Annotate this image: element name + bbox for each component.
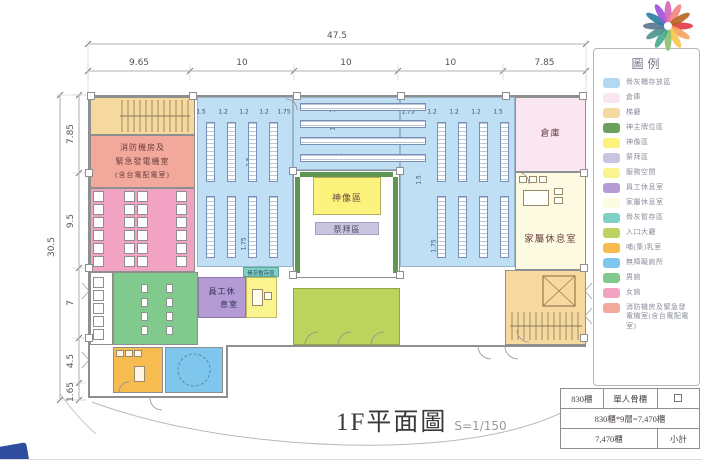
legend-swatch [603,93,620,103]
structural-column [293,92,301,100]
toilet-stall [137,256,148,267]
legend-swatch [603,273,620,283]
statue-area-label: 神像區 [314,191,380,204]
cabinet-strip [500,122,509,182]
urinal-fixture [166,326,173,335]
legend-item: 神像區 [603,138,692,148]
legend-item: 男廁 [603,273,692,283]
legend-item-label: 祭拜區 [626,153,649,162]
tablet-zone-bar-right [393,177,398,273]
legend-item-label: 入口大廳 [626,228,656,237]
structural-column [189,92,197,100]
legend-item: 梯廳 [603,108,692,118]
urinal-fixture [141,312,148,321]
cabinet-strip [479,122,488,182]
room-temp-ash-storage: 骨灰暫存區 [243,267,279,277]
legend-swatch [603,183,620,193]
wall-bottom-center [226,345,586,347]
dim-left-segment: 7.85 [66,124,76,144]
toilet-stall [93,256,104,267]
cabinet-strip [458,122,467,182]
toilet-stall [137,217,148,228]
dim-top-segment: 10 [445,58,456,68]
structural-column [579,92,587,100]
cabinet-strip [227,196,236,258]
cabinet-dim: 1.5 [196,109,206,116]
count-type: 單人骨櫃 [603,389,657,409]
legend-swatch [603,213,620,223]
legend-title: 圖例 [603,55,692,72]
room-stair-hall-topleft [90,97,195,135]
legend-item-label: 員工休息室 [626,183,664,192]
toilet-stall [176,243,187,254]
family-lounge-table [523,190,549,206]
legend-swatch [603,108,620,118]
single-cabinet-symbol-cell [657,389,699,409]
legend-item-label: 服務空間 [626,168,656,177]
legend-swatch [603,288,620,298]
legend-item-label: 神主牌位區 [626,123,664,132]
legend-item: 倉庫 [603,93,692,103]
toilet-stall [93,329,104,340]
dim-left-segment: 9.5 [66,213,76,227]
toilet-stall [124,230,135,241]
cabinet-dim: 1.2 [449,109,459,116]
cabinet-strip [437,196,446,258]
dim-left-segment: 4.5 [66,353,76,367]
toilet-stall [137,230,148,241]
toilet-stall [137,243,148,254]
dim-top-segment: 9.65 [129,58,149,68]
count-subtotal-label: 小計 [657,429,699,449]
nursing-counter [134,366,145,382]
toilet-stall [124,191,135,202]
legend-item: 女廁 [603,288,692,298]
legend-swatch [603,138,620,148]
cabinet-strip [300,103,426,111]
legend-item: 入口大廳 [603,228,692,238]
warehouse-label: 倉庫 [516,126,585,139]
structural-column [85,264,93,272]
toilet-stall [93,217,104,228]
legend-item-label: 骨灰櫃存放區 [626,78,671,87]
cabinet-dim: 1.5 [493,109,503,116]
cabinet-strip [269,122,278,182]
legend-item-label: 神像區 [626,138,649,147]
legend-item-label: 哺(集)乳室 [626,243,662,252]
room-accessible-toilet [165,347,223,393]
tablet-zone-bar-left [295,177,300,273]
urinal-fixture [141,298,148,307]
legend-item-label: 倉庫 [626,93,641,102]
legend-item: 神主牌位區 [603,123,692,133]
urinal-fixture [141,284,148,293]
legend-swatch [603,228,620,238]
room-staff-lounge: 員工休 息室 [198,277,246,318]
drawing-sheet: 消防機房及 緊急發電機室 (含台電配電室) 神像區 祭拜區 [0,0,702,460]
toilet-stall [124,204,135,215]
room-mens-toilet [113,272,198,345]
toilet-stall [176,217,187,228]
legend-swatch [603,153,620,163]
toilet-stall [93,204,104,215]
legend-item: 服務空間 [603,168,692,178]
cabinet-strip [248,122,257,182]
toilet-stall [137,204,148,215]
legend-item: 家屬休息室 [603,198,692,208]
title-text: 1F平面圖 [336,409,447,436]
cabinet-strip [437,122,446,182]
room-warehouse: 倉庫 [515,97,586,172]
legend-item: 骨灰暫存區 [603,213,692,223]
toilet-stall [124,217,135,228]
legend-swatch [603,258,620,268]
structural-column [580,334,588,342]
dim-top-segment: 10 [236,58,247,68]
worship-area: 祭拜區 [315,222,379,235]
structural-column [397,92,405,100]
legend-item: 消防機房及緊急發電機室(含台電配電室) [603,303,692,331]
legend-item: 祭拜區 [603,153,692,163]
room-stair-hall-bottomright [505,270,586,345]
cabinet-strip [479,196,488,258]
legend-item-label: 男廁 [626,273,641,282]
family-lounge-label: 家屬休息室 [516,231,585,245]
cabinet-count-table: 830櫃 單人骨櫃 830櫃*9層=7,470櫃 7,470櫃 小計 [560,388,700,449]
cabinet-dim: 1.2 [259,109,269,116]
dim-left-total: 30.5 [47,237,57,257]
legend-item: 骨灰櫃存放區 [603,78,692,88]
legend-swatch [603,198,620,208]
dim-left-segment: 1.65 [66,381,76,401]
cabinet-dim: 1.75 [277,109,290,116]
cabinet-dim: 1.2 [427,109,437,116]
legend-list: 骨灰櫃存放區倉庫梯廳神主牌位區神像區祭拜區服務空間員工休息室家屬休息室骨灰暫存區… [603,78,692,331]
legend-item: 無障礙廁所 [603,258,692,268]
wall-bottom-left [88,396,228,398]
fire-room-label-line1: 消防機房及 [91,142,194,153]
legend-item: 員工休息室 [603,183,692,193]
structural-column [85,169,93,177]
legend-item-label: 家屬休息室 [626,198,664,207]
structural-column [502,92,510,100]
legend-item-label: 消防機房及緊急發電機室(含台電配電室) [626,303,692,331]
structural-column [85,334,93,342]
structural-column [580,169,588,177]
fire-room-label-line3: (含台電配電室) [91,170,194,180]
cabinet-strip [206,196,215,258]
cabinet-dim: 1.2 [239,109,249,116]
count-830: 830櫃 [561,389,604,409]
entrance-hall [293,288,400,345]
legend-item-label: 骨灰暫存區 [626,213,664,222]
toilet-stall [176,230,187,241]
legend-swatch [603,123,620,133]
toilet-stall [93,316,104,327]
room-fire-equipment: 消防機房及 緊急發電機室 (含台電配電室) [90,135,195,188]
toilet-stall [124,256,135,267]
cabinet-square-icon [674,394,682,402]
cabinet-strip [300,120,426,128]
dim-top-total: 47.5 [327,31,347,41]
urinal-fixture [141,326,148,335]
legend-swatch [603,303,620,313]
cabinet-strip [248,196,257,258]
legend-swatch [603,78,620,88]
toilet-stall [93,290,104,301]
dim-left-segment: 7 [66,300,76,306]
toilet-stall [124,243,135,254]
urinal-fixture [166,284,173,293]
cabinet-strip [300,137,426,145]
temp-storage-label: 骨灰暫存區 [244,269,278,277]
cabinet-dim: 1.2 [218,109,228,116]
structural-column [580,264,588,272]
legend-item: 哺(集)乳室 [603,243,692,253]
cabinet-strip [227,122,236,182]
cabinet-strip [500,196,509,258]
legend-panel: 圖例 骨灰櫃存放區倉庫梯廳神主牌位區神像區祭拜區服務空間員工休息室家屬休息室骨灰… [593,48,700,386]
staff-lounge-label-line1: 員工休 [199,286,245,297]
legend-item-label: 女廁 [626,288,641,297]
staff-lounge-label-line2: 息室 [199,299,245,310]
room-family-lounge: 家屬休息室 [515,172,586,270]
cabinet-dim: 1.2 [471,109,481,116]
statue-area: 神像區 [313,177,381,215]
toilet-stall [93,277,104,288]
legend-swatch [603,168,620,178]
dim-top-segment: 7.85 [534,58,554,68]
cabinet-strip [458,196,467,258]
wall-step [226,345,228,398]
title-scale: S=1/150 [454,419,506,433]
structural-column [87,92,95,100]
toilet-stall [93,303,104,314]
count-subtotal-value: 7,470櫃 [561,429,658,449]
dim-top-segment: 10 [340,58,351,68]
sheet-corner-mark [0,442,29,460]
cabinet-strip [269,196,278,258]
service-desk [252,289,263,306]
cabinet-dim: 1.5 [416,175,423,185]
count-formula: 830櫃*9層=7,470櫃 [561,409,700,429]
worship-area-label: 祭拜區 [316,224,378,235]
fire-room-label-line2: 緊急發電機室 [91,156,194,167]
legend-item-label: 梯廳 [626,108,641,117]
cabinet-strip [206,122,215,182]
toilet-stall [93,230,104,241]
toilet-stall [176,256,187,267]
toilet-stall [93,191,104,202]
toilet-stall [176,204,187,215]
toilet-stall [176,191,187,202]
legend-item-label: 無障礙廁所 [626,258,664,267]
urinal-fixture [166,312,173,321]
cabinet-dim: 1.75 [241,237,248,250]
drawing-title: 1F平面圖S=1/150 [336,402,507,438]
toilet-stall [137,191,148,202]
legend-swatch [603,243,620,253]
toilet-stall [93,243,104,254]
cabinet-strip [300,154,426,162]
urinal-fixture [166,298,173,307]
service-chair [264,292,272,300]
